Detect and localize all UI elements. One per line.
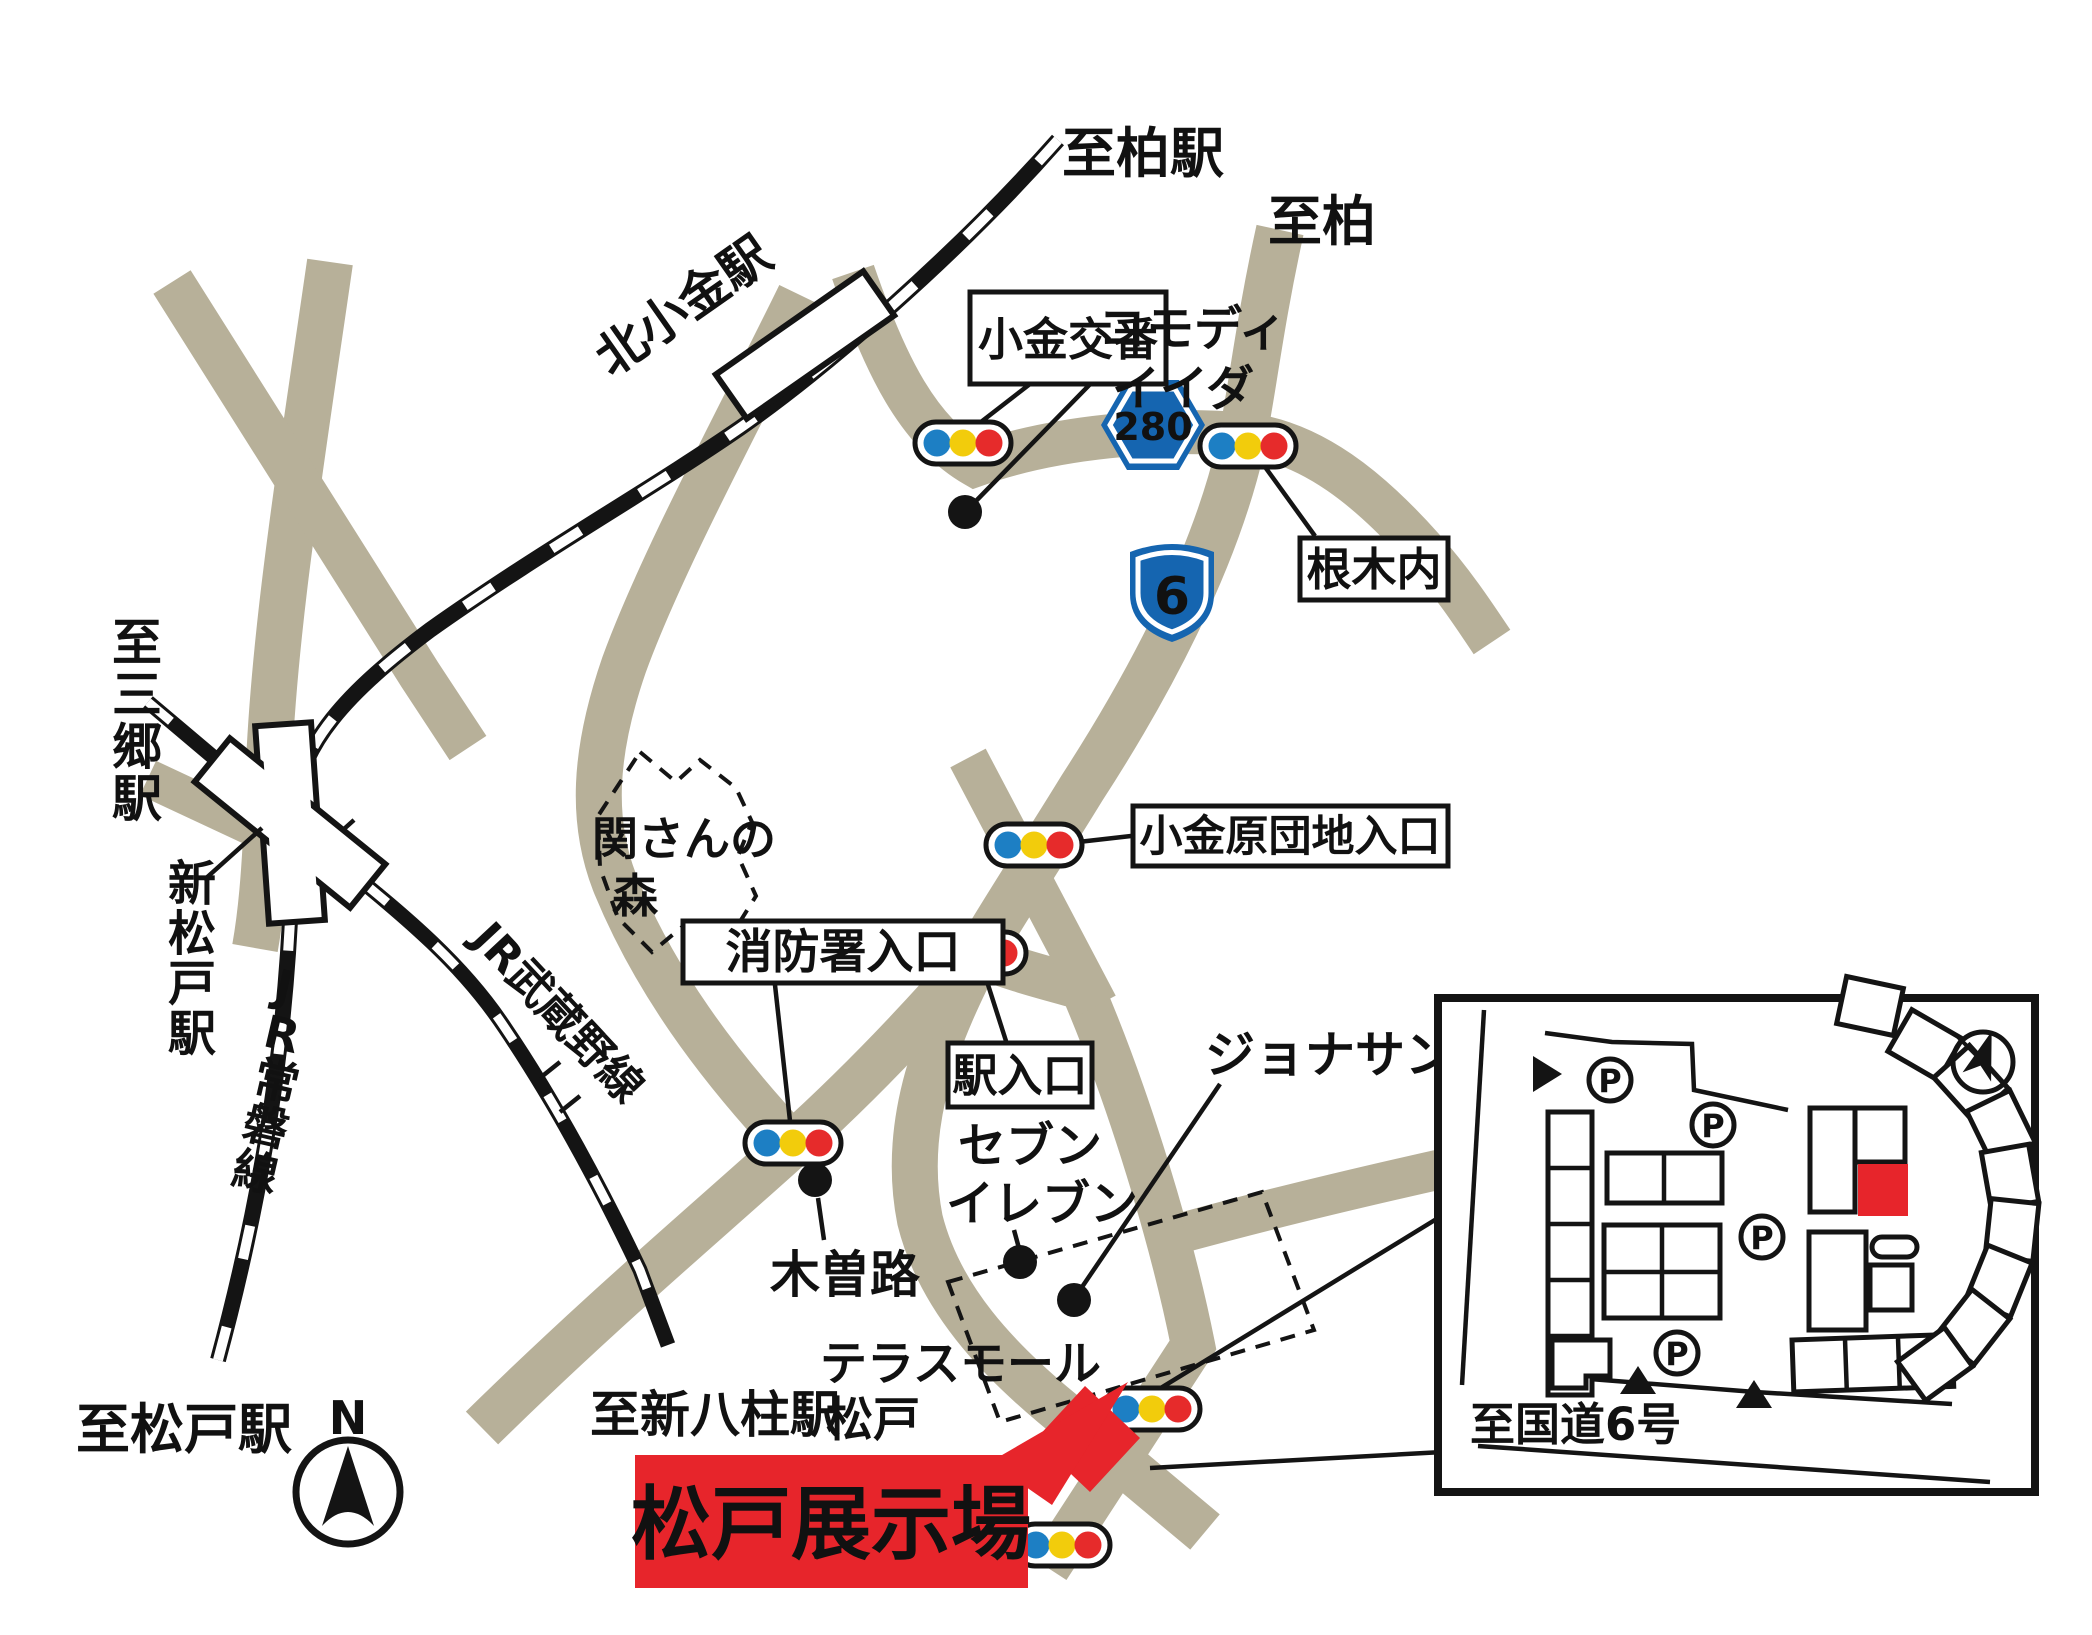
matsudo-label: 至松戸駅 [76, 1398, 292, 1461]
commodi-label-2: イイダ [1112, 361, 1254, 417]
parking-icon: P [1750, 1219, 1773, 1257]
terrace-label-1: テラスモール [820, 1337, 1101, 1392]
seven-label-2: イレブン [946, 1176, 1138, 1232]
parking-icon: P [1598, 1062, 1621, 1100]
dest-kashiwa-label: 至柏 [1268, 190, 1376, 253]
traffic-signal-koganehara [986, 824, 1082, 866]
inset-site-lot-highlight [1858, 1164, 1908, 1216]
traffic-signal-fire-station [745, 1122, 841, 1164]
seven-label-1: セブン [958, 1118, 1102, 1174]
seki-forest-label-1: 関さんの [592, 812, 776, 866]
inset-kokudo6-label: 至国道6号 [1470, 1398, 1681, 1451]
inset-building-b [1604, 1225, 1720, 1318]
access-map: 280 6 小金交番 根木内 小金原団地入口 消防署入口 駅入口 至柏駅 至柏 … [0, 0, 2092, 1635]
inset-map: P P P P 至国道6号 [1438, 976, 2039, 1492]
compass-needle-icon [322, 1446, 374, 1526]
shin-matsudo-label: 新松戸駅 [168, 856, 216, 1062]
parking-icon: P [1665, 1335, 1688, 1373]
svg-text:小金原団地入口: 小金原団地入口 [1140, 812, 1441, 862]
parking-icon: P [1701, 1107, 1724, 1145]
label-koganehara: 小金原団地入口 [1133, 806, 1448, 866]
svg-text:消防署入口: 消防署入口 [726, 925, 961, 980]
traffic-signal-negiuchi [1200, 425, 1296, 467]
label-negiuchi: 根木内 [1300, 538, 1448, 600]
terrace-label-2: 松戸 [826, 1393, 920, 1448]
jonathan-dot [1057, 1283, 1091, 1317]
compass: N [296, 1391, 400, 1544]
road-j-curve [599, 295, 800, 1148]
route-6-number: 6 [1154, 567, 1190, 627]
dest-kashiwa-sta-label: 至柏駅 [1062, 122, 1224, 185]
kisoji-label: 木曽路 [770, 1246, 921, 1304]
site-banner: 松戸展示場 [631, 1455, 1031, 1588]
joban-line-label: JR常磐線 [224, 958, 325, 1203]
site-banner-label: 松戸展示場 [631, 1478, 1031, 1571]
kisoji-dot [798, 1163, 832, 1197]
road-to-inset [1185, 1168, 1446, 1232]
jonathan-label: ジョナサン [1205, 1026, 1455, 1084]
inset-building-a [1607, 1153, 1722, 1203]
shin-yahashira-label: 至新八柱駅 [590, 1386, 840, 1444]
commodi-label-1: コモディ [1098, 301, 1287, 357]
label-fire-station: 消防署入口 [683, 921, 1003, 983]
route-6-badge: 6 [1130, 544, 1214, 642]
svg-text:根木内: 根木内 [1306, 543, 1441, 596]
seven-eleven-dot [1003, 1245, 1037, 1279]
traffic-signal-koban [915, 422, 1011, 464]
seki-forest-label-2: 森 [612, 869, 659, 923]
misato-label: 至三郷駅 [112, 614, 162, 828]
svg-text:駅入口: 駅入口 [952, 1049, 1087, 1102]
commodi-iida-dot [948, 495, 982, 529]
label-station-entrance: 駅入口 [948, 1043, 1092, 1107]
